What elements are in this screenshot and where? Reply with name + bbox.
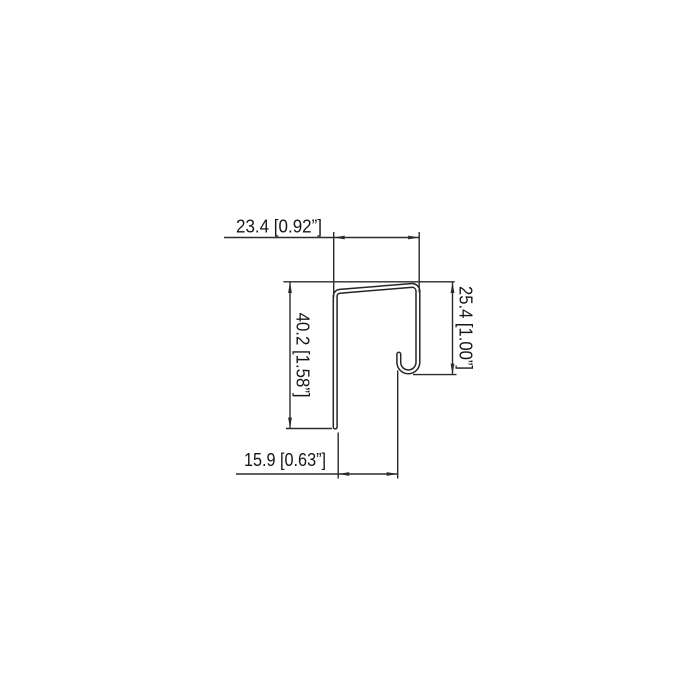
svg-text:40.2 [1.58”]: 40.2 [1.58”] — [293, 313, 313, 398]
svg-text:25.4 [1.00”]: 25.4 [1.00”] — [456, 286, 476, 370]
svg-text:15.9 [0.63”]: 15.9 [0.63”] — [244, 450, 326, 470]
svg-text:23.4 [0.92”]: 23.4 [0.92”] — [236, 217, 322, 237]
